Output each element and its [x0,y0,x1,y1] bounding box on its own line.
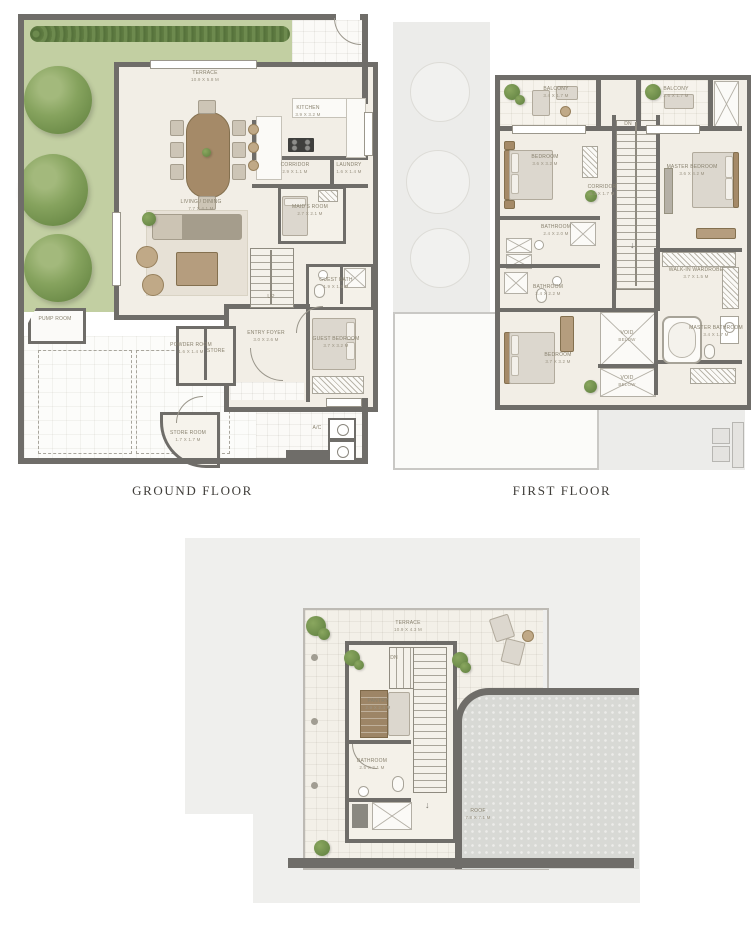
roof-slab [455,688,639,869]
room-label-bath2: BATHROOM2.4 x 2.0 M [541,224,571,237]
linen-closet [690,368,736,384]
floorplan-sheet: TERRACE10.9 x 5.8 M KITCHEN3.9 x 3.2 M C… [0,0,751,936]
kitchen-island [256,116,282,180]
room-dim: 3.6 x 3.2 M [531,161,558,167]
side-table [560,106,571,117]
up-label: UP [267,294,274,300]
room-label-master-bath: MASTER BATHROOM3.4 x 1.7 M [689,325,743,338]
room-label-terrace: TERRACE10.9 x 5.8 M [191,70,219,83]
room-dim: 1.6 x 1.4 M [170,349,212,355]
room-label-walkin: WALK-IN WARDROBE3.7 x 1.5 M [669,267,724,280]
room-label-bath3: BATHROOM2.4 x 2.2 M [533,284,563,297]
table-plant-icon [202,148,211,157]
room-name: GUEST BEDROOM [313,336,360,342]
pillow [725,178,733,200]
plot-wall-left [18,14,24,464]
dining-chair [170,120,184,136]
room-label-bedroom3: BEDROOM3.7 x 3.2 M [544,352,571,365]
room-name: BATHROOM [357,758,387,764]
kitchen-counter-side [346,98,366,158]
room-dim: 3.7 x 3.2 M [544,359,571,365]
ac-unit-icon [328,440,356,462]
roof-equipment [712,428,730,444]
shower-icon [570,222,596,246]
wall-bath-top [495,216,600,220]
room-dim: 2.4 x 2.0 M [541,231,571,237]
roof-wall-bottom [288,858,634,868]
room-label-ac: A/C [313,425,322,432]
room-dim: 3.7 x 1.5 M [669,274,724,280]
bar-stool [248,142,259,153]
armchair [136,246,158,268]
pillow [725,156,733,178]
equipment-box [352,804,368,828]
room-name: TERRACE [395,620,420,626]
room-name: ROOF [470,808,485,814]
room-dim: 7.7 x 4.1 M [180,206,221,212]
window [364,112,373,156]
room-dim: BELOW [618,382,635,388]
room-dim: 3.4 x 1.7 M [689,332,743,338]
pillow [511,335,519,355]
stair-flight-long [413,647,447,793]
room-label-roof-slab: ROOF7.8 x 7.1 M [465,808,490,821]
downlight-dot [311,654,318,661]
bed-bench [696,228,736,239]
downlight-dot [311,782,318,789]
dresser [560,316,574,352]
window [326,398,362,407]
roof-equipment [712,446,730,462]
wall-shower-corner [708,75,713,131]
tree-icon [24,234,92,302]
room-label-laundry: LAUNDRY1.6 x 1.4 M [336,162,361,175]
pillow [511,153,519,173]
wall-master-left [654,248,658,395]
vanity [506,238,532,253]
room-name: BALCONY [663,86,688,92]
stair-flight-upper [389,647,415,689]
tree-icon [18,154,88,226]
bar-stool [248,124,259,135]
room-name: MAID'S ROOM [292,204,328,210]
wall-corridor-bottom [252,184,368,188]
nightstand [504,200,515,209]
room-label-guest-bath: GUEST BATH1.9 x 1.6 M [319,277,353,290]
sink-icon [358,786,369,797]
room-name: GUEST BATH [319,277,353,283]
plant-icon [354,660,364,670]
coffee-table [176,252,218,286]
walkin-closet [722,267,739,309]
room-dim: 3.7 x 3.2 M [313,343,360,349]
dining-chair [232,142,246,158]
room-dim: 2.5 x 2.1 M [357,765,387,771]
caption-first-floor: FIRST FLOOR [497,483,627,499]
room-label-living: LIVING / DINING7.7 x 4.1 M [180,199,221,212]
room-label-pantry: PANTRY2.9 x 2.4 M [365,698,390,711]
room-dim: 10.9 x 5.8 M [191,77,219,83]
room-name: A/C [313,425,322,431]
wall-bedroom3-top [495,308,658,312]
plot-wall-right-lower [362,398,368,464]
corner-shower [714,81,739,127]
room-name: ENTRY FOYER [247,330,285,336]
toilet-icon [704,344,715,359]
maid-wardrobe [318,190,338,202]
room-label-roof-terrace: TERRACE10.9 x 4.3 M [394,620,422,633]
room-label-pump: PUMP ROOM [38,316,71,323]
stair-label-dn-roof: DN [390,655,398,662]
room-dim: 1.6 x 1.4 M [336,169,361,175]
room-name: TERRACE [192,70,217,76]
room-dim: 2.7 x 2.1 M [292,211,328,217]
room-label-void2: VOIDBELOW [618,375,635,388]
room-name: LAUNDRY [336,162,361,168]
room-name: KITCHEN [296,105,319,111]
wall-laundry-divider [330,156,334,188]
dining-chair [232,164,246,180]
ghost-tree-outline [410,62,470,122]
room-label-guest-bed: GUEST BEDROOM3.7 x 3.2 M [313,336,360,349]
room-dim: 2.4 x 2.2 M [533,291,563,297]
roof-equipment [732,422,744,468]
pillow [511,356,519,376]
staircase-first [616,120,658,290]
armchair [142,274,164,296]
ghost-tree-outline [410,228,470,288]
room-label-roof-bathroom: BATHROOM2.5 x 2.1 M [357,758,387,771]
room-name: VOID [620,375,633,381]
room-name: BATHROOM [533,284,563,290]
room-name: BALCONY [543,86,568,92]
bed-headboard [733,152,739,208]
shaft-box [372,802,412,830]
toilet-icon [392,776,404,792]
room-dim: 1.9 x 1.6 M [319,284,353,290]
down-arrow-icon: ↓ [630,240,635,250]
stair-label-up: UP [267,294,274,301]
room-name: STORE ROOM [170,430,206,436]
parking-stall [38,350,132,454]
plot-wall-top [18,14,368,20]
room-name: CORRIDOR [588,184,617,190]
plant-icon [645,84,661,100]
wall-bath-divider [495,264,600,268]
room-dim: 3.9 x 3.2 M [295,112,320,118]
plant-icon [318,628,330,640]
wall-bathroom-bottom [349,798,411,802]
plant-icon [314,840,330,856]
room-label-bedroom2: BEDROOM3.6 x 3.2 M [531,154,558,167]
dining-chair [198,100,216,114]
dining-chair [170,164,184,180]
room-dim: 3.0 x 2.6 M [247,337,285,343]
shower-icon [504,272,528,294]
room-label-corridor: CORRIDOR2.9 x 1.1 M [281,162,310,175]
dn-label: DN [390,655,398,661]
pillow [511,174,519,194]
room-name: POWDER ROOM [170,342,212,348]
room-label-foyer: ENTRY FOYER3.0 x 2.6 M [247,330,285,343]
ghost-notch [185,814,253,903]
daybed [388,692,410,736]
room-dim: 2.6 x 1.7 M [663,93,688,99]
plot-wall-right-upper [362,14,368,104]
room-name: LIVING / DINING [180,199,221,205]
ghost-tree-outline [406,150,470,214]
window [512,125,586,134]
room-name: CORRIDOR [281,162,310,168]
pump-room [28,308,86,344]
window [112,212,121,286]
wall-stair-left [612,115,616,311]
room-label-kitchen: KITCHEN3.9 x 3.2 M [295,105,320,118]
dining-chair [170,142,184,158]
window [646,125,700,134]
room-label-store-small: STORE [207,348,225,355]
wall-walkin-top [658,248,742,252]
guest-wardrobe [312,376,364,394]
wall-stub [286,450,330,464]
room-label-master: MASTER BEDROOM3.6 x 4.2 M [667,164,718,177]
room-dim: 2.9 x 2.4 M [365,705,390,711]
sink-icon [534,240,544,250]
stair-rail [635,122,637,286]
room-name: BEDROOM [544,352,571,358]
window [150,60,257,69]
wardrobe [582,146,598,178]
room-name: STORE [207,348,225,354]
downlight-dot [311,718,318,725]
side-table [522,630,534,642]
plant-icon [460,662,471,673]
room-dim: 3.4 x 1.7 M [543,93,568,99]
wall-balcony-divider [596,75,601,131]
dining-chair [232,120,246,136]
room-label-balcony-right: BALCONY2.6 x 1.7 M [663,86,688,99]
dn-label: DN [624,121,632,127]
room-dim: 3.6 x 4.2 M [667,171,718,177]
room-dim: 7.8 x 7.1 M [465,815,490,821]
room-label-balcony-left: BALCONY3.4 x 1.7 M [543,86,568,99]
room-name: MASTER BEDROOM [667,164,718,170]
plant-icon [142,212,156,226]
tree-icon [24,66,92,134]
ac-unit-icon [328,418,356,440]
room-name: PANTRY [367,698,388,704]
room-name: MASTER BATHROOM [689,325,743,331]
room-label-maid: MAID'S ROOM2.7 x 2.1 M [292,204,328,217]
caption-ground-floor: GROUND FLOOR [115,483,270,499]
down-arrow-icon: ↓ [425,800,430,810]
plant-icon [515,95,525,105]
room-name: BEDROOM [531,154,558,160]
entry-porch [230,382,304,400]
room-label-corridor-first: CORRIDOR4.4 x 1.7 M [588,184,617,197]
room-dim: 1.7 x 1.7 M [170,437,206,443]
hedge-row [30,26,290,42]
bar-stool [248,160,259,171]
plant-icon [584,380,597,393]
bathtub-icon [662,316,702,364]
room-name: PUMP ROOM [38,316,71,322]
wall-void-divider [598,364,656,368]
room-name: BATHROOM [541,224,571,230]
room-dim: BELOW [618,337,635,343]
sofa [152,214,242,240]
nightstand [504,141,515,150]
room-label-void1: VOIDBELOW [618,330,635,343]
room-label-powder: POWDER ROOM1.6 x 1.4 M [170,342,212,355]
room-label-store-room: STORE ROOM1.7 x 1.7 M [170,430,206,443]
room-dim: 10.9 x 4.3 M [394,627,422,633]
walkin-closet [662,252,736,267]
stove-icon [288,138,314,152]
room-dim: 4.4 x 1.7 M [588,191,617,197]
room-dim: 2.9 x 1.1 M [281,169,310,175]
room-name: VOID [620,330,633,336]
room-name: WALK-IN WARDROBE [669,267,724,273]
stair-label-dn-first: DN [624,121,632,128]
